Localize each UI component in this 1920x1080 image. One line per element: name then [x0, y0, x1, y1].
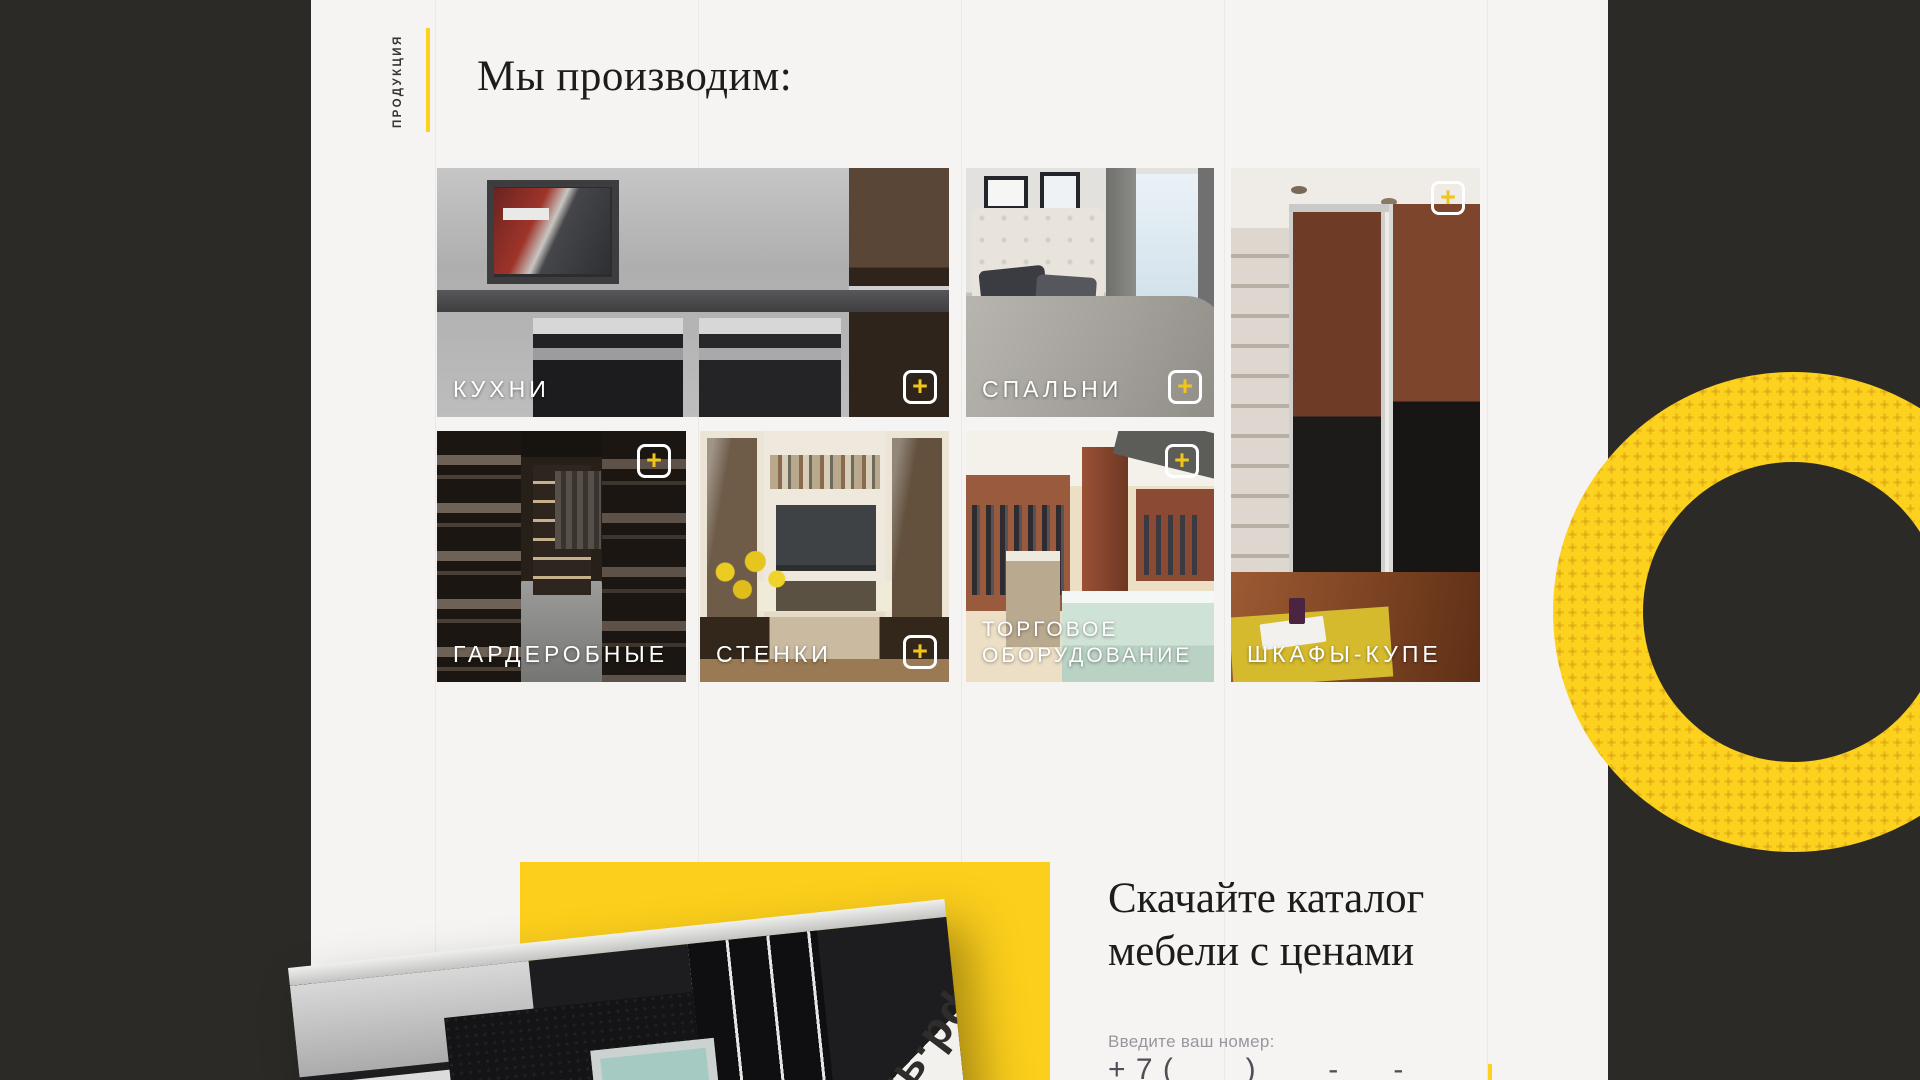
product-label-sliding-wardrobes: ШКАФЫ-КУПЕ: [1247, 640, 1442, 669]
photo-detail: [437, 290, 949, 312]
wall-units-plus-button[interactable]: +: [903, 635, 937, 669]
product-card-wall-units[interactable]: СТЕНКИ +: [700, 431, 949, 682]
photo-detail: [494, 188, 610, 274]
product-label-retail-equipment: ТОРГОВОЕ ОБОРУДОВАНИЕ: [982, 617, 1187, 670]
sliding-wardrobes-photo: [1231, 168, 1480, 682]
photo-detail: [503, 208, 549, 220]
photo-detail: [1291, 186, 1307, 194]
download-heading-line2: мебели с ценами: [1108, 925, 1424, 978]
photo-detail: [984, 176, 1028, 210]
plus-icon: +: [1177, 373, 1193, 400]
phone-input[interactable]: [1106, 1052, 1530, 1080]
landing-page: ПРОДУКЦИЯ Мы производим: КУХНИ +: [0, 0, 1920, 1080]
product-label-bedrooms: СПАЛЬНИ: [982, 375, 1122, 404]
sliding-wardrobes-plus-button[interactable]: +: [1431, 181, 1465, 215]
product-card-sliding-wardrobes[interactable]: ШКАФЫ-КУПЕ +: [1231, 168, 1480, 682]
download-heading-line1: Скачайте каталог: [1108, 872, 1424, 925]
left-dark-strip: [0, 0, 311, 1080]
yellow-ring-decoration: [1553, 372, 1920, 852]
bedrooms-plus-button[interactable]: +: [1168, 370, 1202, 404]
page-title: Мы производим:: [477, 52, 792, 101]
product-label-kitchens: КУХНИ: [453, 375, 550, 404]
photo-detail: [885, 431, 949, 645]
photo-detail: [1231, 228, 1289, 588]
plus-icon: +: [912, 638, 928, 665]
product-card-bedrooms[interactable]: СПАЛЬНИ +: [966, 168, 1214, 417]
plus-icon: +: [1440, 184, 1456, 211]
product-card-dressing-rooms[interactable]: ГАРДЕРОБНЫЕ +: [437, 431, 686, 682]
download-heading: Скачайте каталог мебели с ценами: [1108, 872, 1424, 978]
photo-detail: [1289, 212, 1385, 584]
grid-line: [435, 0, 436, 1080]
photo-detail: [533, 318, 683, 417]
phone-input-label: Введите ваш номер:: [1108, 1032, 1275, 1052]
product-label-dressing-rooms: ГАРДЕРОБНЫЕ: [453, 640, 668, 669]
plus-icon: +: [646, 447, 662, 474]
yellow-accent-line: [426, 28, 430, 132]
retail-equipment-plus-button[interactable]: +: [1165, 444, 1199, 478]
product-card-retail-equipment[interactable]: ТОРГОВОЕ ОБОРУДОВАНИЕ +: [966, 431, 1214, 682]
photo-detail: [708, 551, 794, 621]
dressing-rooms-plus-button[interactable]: +: [637, 444, 671, 478]
photo-detail: [1389, 204, 1480, 584]
photo-detail: [1040, 172, 1080, 212]
photo-detail: [699, 318, 841, 417]
plus-icon: +: [912, 373, 928, 400]
product-card-kitchens[interactable]: КУХНИ +: [437, 168, 949, 417]
photo-detail: [1289, 598, 1305, 624]
photo-detail: [1082, 447, 1128, 615]
section-label-products: ПРОДУКЦИЯ: [392, 36, 404, 128]
grid-line: [1487, 0, 1488, 1080]
product-label-wall-units: СТЕНКИ: [716, 640, 832, 669]
photo-detail: [1136, 489, 1214, 581]
photo-detail: [770, 455, 880, 489]
photo-detail: [555, 471, 601, 549]
kitchens-plus-button[interactable]: +: [903, 370, 937, 404]
plus-icon: +: [1174, 447, 1190, 474]
